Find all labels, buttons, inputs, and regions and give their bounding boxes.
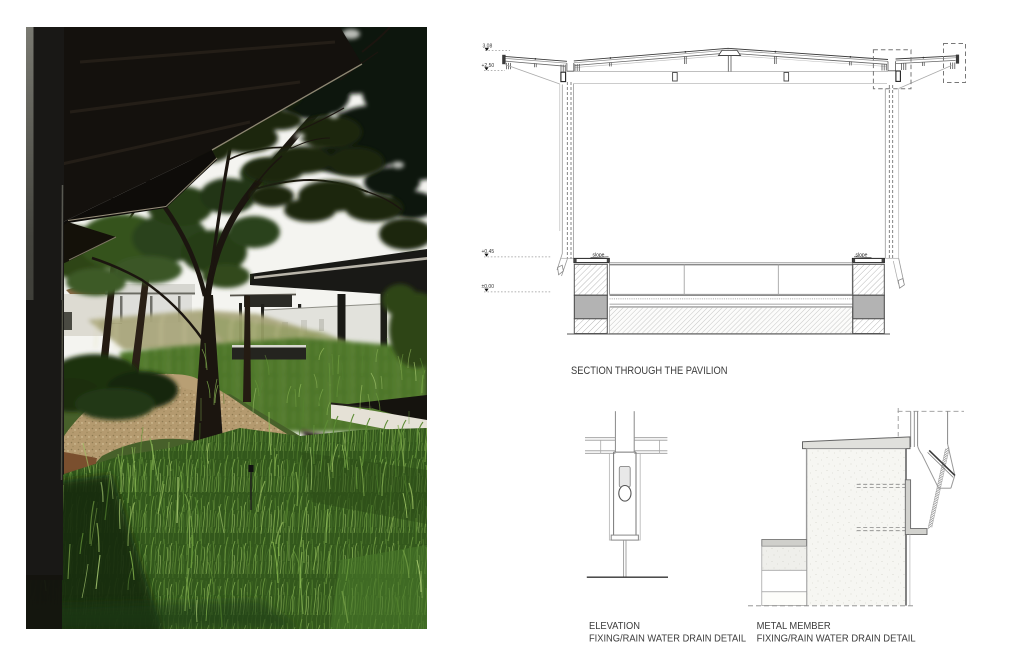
svg-text:FIXING/RAIN WATER DRAIN DETAIL: FIXING/RAIN WATER DRAIN DETAIL xyxy=(589,633,746,645)
svg-text:METAL MEMBER: METAL MEMBER xyxy=(757,620,831,632)
svg-text:ELEVATION: ELEVATION xyxy=(589,620,640,632)
svg-text:SECTION THROUGH THE PAVILION: SECTION THROUGH THE PAVILION xyxy=(571,365,728,377)
svg-text:FIXING/RAIN WATER DRAIN DETAIL: FIXING/RAIN WATER DRAIN DETAIL xyxy=(757,633,916,645)
